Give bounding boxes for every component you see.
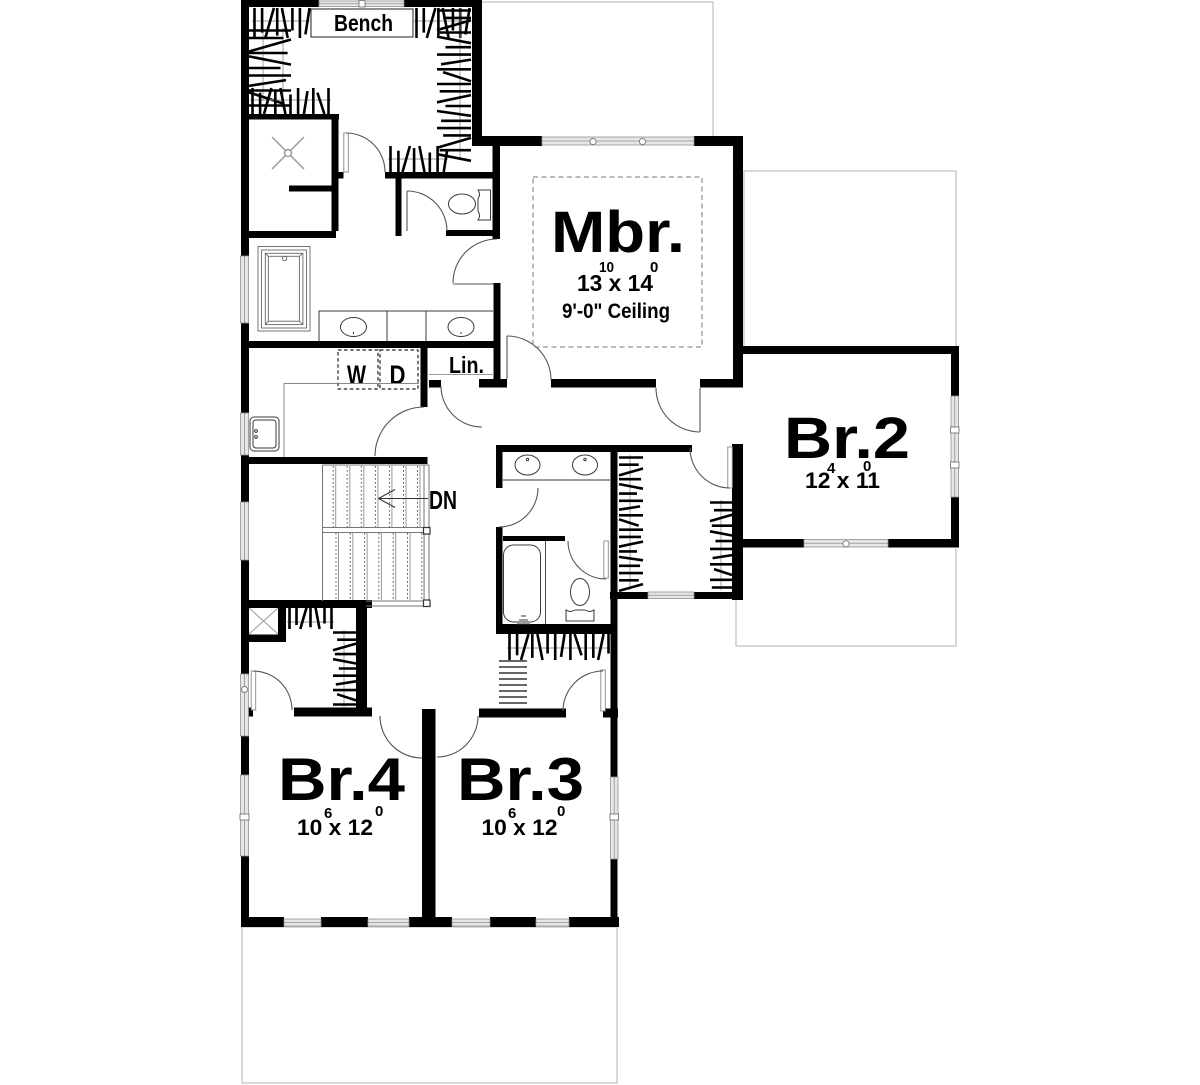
- svg-text:10 x 12: 10 x 12: [297, 815, 373, 840]
- svg-text:4: 4: [827, 460, 836, 477]
- svg-text:Br.4: Br.4: [278, 746, 406, 813]
- svg-text:0: 0: [863, 458, 871, 475]
- svg-text:0: 0: [375, 803, 383, 820]
- svg-text:Lin.: Lin.: [449, 352, 484, 378]
- svg-text:Mbr.: Mbr.: [551, 200, 685, 265]
- svg-text:0: 0: [557, 803, 565, 820]
- svg-text:Bench: Bench: [334, 10, 393, 36]
- svg-text:Br.2: Br.2: [784, 406, 910, 471]
- svg-text:10: 10: [599, 259, 614, 276]
- svg-text:6: 6: [324, 805, 332, 822]
- svg-text:W: W: [347, 360, 366, 390]
- svg-text:DN: DN: [429, 485, 457, 515]
- svg-text:13 x 14: 13 x 14: [577, 270, 653, 296]
- svg-text:0: 0: [650, 259, 658, 276]
- svg-text:10 x 12: 10 x 12: [482, 815, 558, 840]
- svg-text:6: 6: [508, 805, 516, 822]
- svg-text:9'-0" Ceiling: 9'-0" Ceiling: [562, 300, 670, 323]
- svg-text:D: D: [390, 360, 406, 390]
